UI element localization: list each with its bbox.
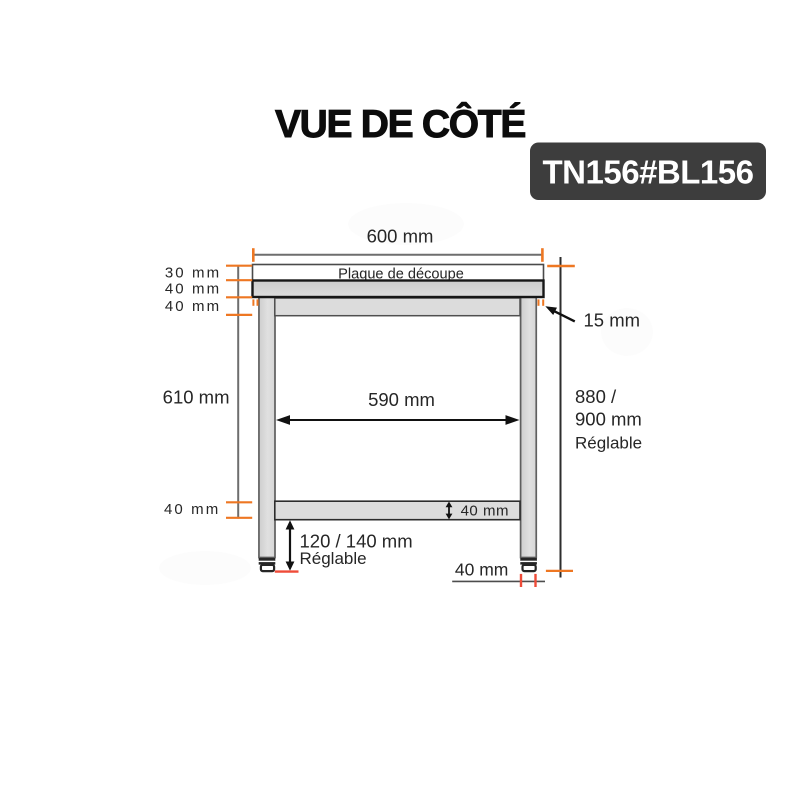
svg-text:880 /: 880 / (575, 386, 617, 407)
svg-text:40 mm: 40 mm (165, 281, 221, 298)
svg-text:Réglable: Réglable (575, 433, 642, 452)
svg-text:40 mm: 40 mm (164, 501, 220, 518)
svg-text:TN156#BL156: TN156#BL156 (543, 154, 754, 191)
svg-text:610 mm: 610 mm (163, 387, 230, 408)
svg-text:900 mm: 900 mm (575, 409, 642, 430)
svg-text:40 mm: 40 mm (455, 560, 508, 580)
svg-text:15 mm: 15 mm (584, 309, 641, 330)
svg-text:40 mm: 40 mm (165, 298, 221, 315)
svg-text:40 mm: 40 mm (461, 503, 509, 520)
svg-text:600 mm: 600 mm (367, 226, 434, 247)
svg-text:VUE DE CÔTÉ: VUE DE CÔTÉ (275, 101, 525, 146)
svg-text:30 mm: 30 mm (165, 265, 221, 282)
svg-text:590 mm: 590 mm (368, 389, 435, 410)
svg-text:Réglable: Réglable (300, 549, 367, 568)
